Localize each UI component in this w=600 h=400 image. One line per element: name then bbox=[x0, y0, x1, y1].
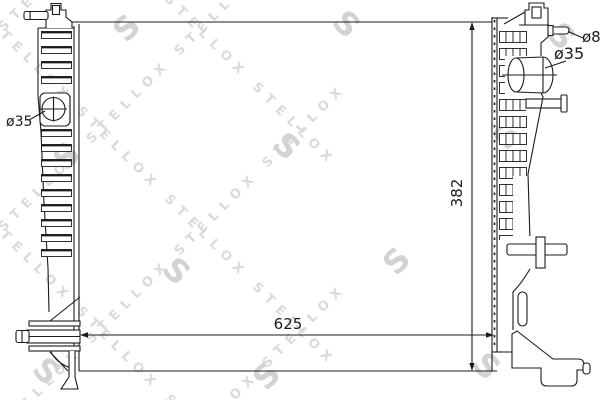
right-slot bbox=[518, 292, 527, 326]
bleed-port-leader bbox=[568, 32, 583, 39]
right-mid-pin bbox=[505, 236, 570, 269]
core-width-label: 625 bbox=[274, 315, 303, 333]
left-top-pipe bbox=[24, 12, 48, 20]
right-top-bracket bbox=[519, 3, 549, 25]
left-inlet-label: ø35 bbox=[6, 114, 32, 130]
right-upper-pin bbox=[526, 94, 568, 114]
dimension-height: 382 bbox=[448, 22, 475, 371]
radiator-drawing-page: STELLOX STELLOX STELLOX STELLOX STELLOX … bbox=[0, 0, 600, 400]
left-bottom-pipe bbox=[16, 331, 29, 343]
left-inlet-port bbox=[39, 93, 70, 126]
bleed-screw-pipe bbox=[548, 26, 569, 36]
right-outlet-label: ø35 bbox=[554, 44, 584, 63]
bleed-port-label: ø8 bbox=[582, 28, 600, 46]
core-height-label: 382 bbox=[448, 179, 466, 208]
left-bottom-bracket bbox=[16, 297, 80, 389]
dimension-width: 625 bbox=[80, 315, 494, 338]
left-tank bbox=[16, 4, 80, 390]
right-bottom-foot bbox=[492, 331, 590, 386]
radiator-drawing: 382 625 ø35 ø35 ø8 bbox=[0, 0, 600, 400]
right-outlet-pipe bbox=[502, 56, 557, 95]
left-top-bracket bbox=[24, 4, 72, 29]
